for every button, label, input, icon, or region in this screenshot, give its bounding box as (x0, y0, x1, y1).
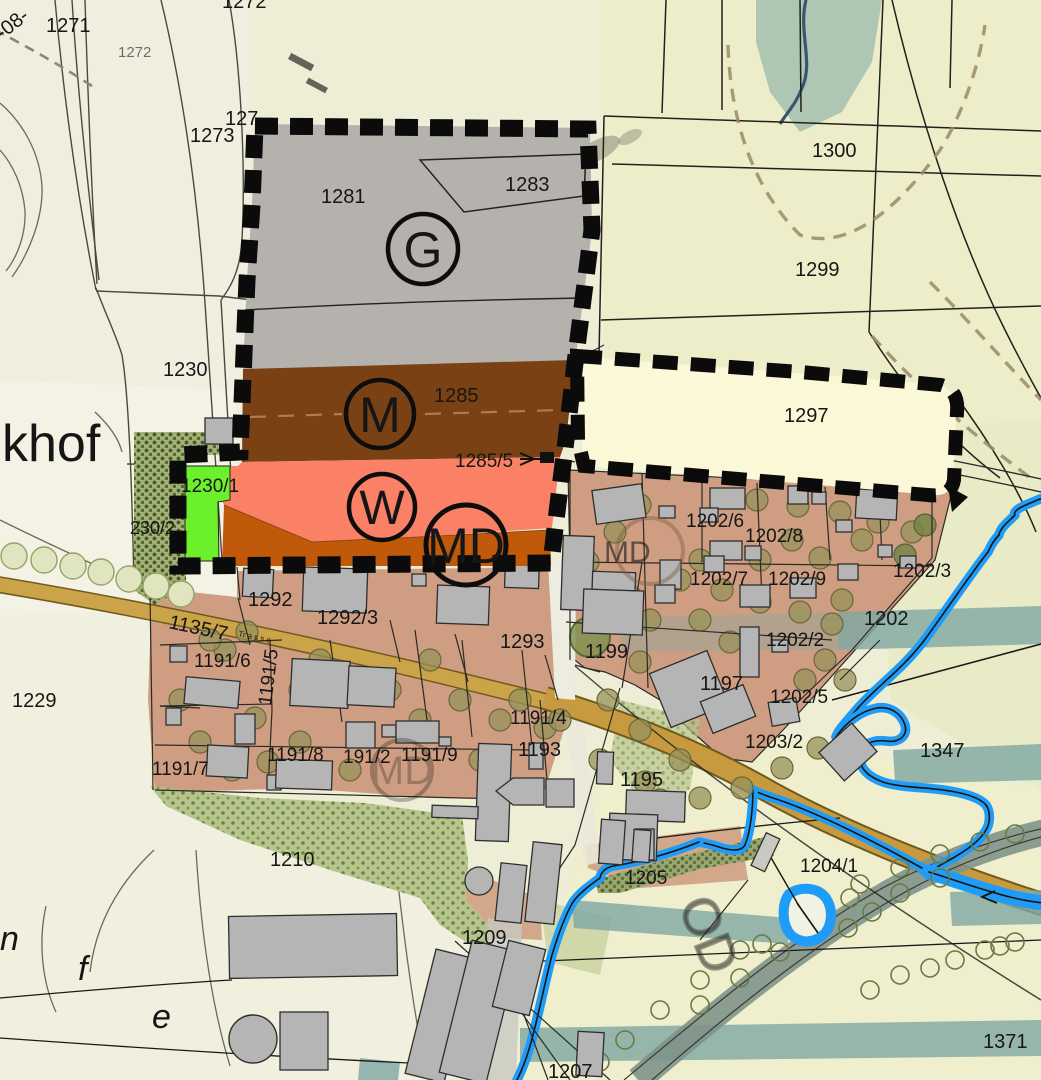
svg-text:1199: 1199 (585, 641, 628, 663)
svg-text:1283: 1283 (505, 174, 550, 196)
svg-text:1191/8: 1191/8 (267, 745, 324, 766)
svg-text:1285: 1285 (434, 385, 479, 407)
svg-text:1202/7: 1202/7 (690, 569, 748, 590)
svg-text:230/2: 230/2 (130, 518, 175, 538)
svg-text:1230: 1230 (163, 359, 208, 381)
svg-text:1193: 1193 (518, 739, 561, 761)
svg-text:1191/6: 1191/6 (194, 651, 251, 672)
svg-text:1195: 1195 (620, 769, 663, 791)
svg-text:1272: 1272 (222, 0, 267, 13)
svg-text:n: n (0, 920, 19, 958)
svg-text:1273: 1273 (190, 125, 235, 147)
svg-text:1299: 1299 (795, 259, 840, 281)
svg-text:1229: 1229 (12, 690, 57, 712)
svg-text:W: W (359, 482, 405, 535)
svg-text:1209: 1209 (462, 927, 507, 949)
svg-text:1191/4: 1191/4 (510, 708, 567, 729)
svg-text:1191/9: 1191/9 (401, 745, 458, 766)
svg-text:1292: 1292 (248, 589, 293, 611)
svg-text:1281: 1281 (321, 186, 366, 208)
svg-text:1205: 1205 (625, 868, 667, 889)
svg-text:1272: 1272 (118, 44, 151, 61)
svg-text:1210: 1210 (270, 849, 315, 871)
svg-text:1202/2: 1202/2 (766, 630, 824, 651)
svg-text:1300: 1300 (812, 140, 857, 162)
svg-text:191/2: 191/2 (343, 747, 391, 768)
svg-text:1202/8: 1202/8 (745, 526, 803, 547)
svg-text:1202/9: 1202/9 (768, 569, 826, 590)
svg-text:1271: 1271 (46, 15, 91, 37)
svg-text:1297: 1297 (784, 405, 829, 427)
svg-text:1285/5: 1285/5 (455, 451, 513, 472)
svg-text:e: e (152, 998, 171, 1036)
svg-text:1203/2: 1203/2 (745, 732, 803, 753)
svg-text:G: G (404, 222, 443, 278)
svg-text:1202/6: 1202/6 (686, 511, 744, 532)
svg-text:khof: khof (2, 415, 101, 473)
svg-text:1293: 1293 (500, 631, 545, 653)
svg-text:1191/7: 1191/7 (152, 759, 209, 780)
svg-text:1292/3: 1292/3 (317, 607, 378, 629)
svg-text:MD: MD (604, 536, 651, 569)
svg-text:1197: 1197 (700, 673, 743, 695)
svg-text:1371: 1371 (983, 1031, 1028, 1053)
svg-text:1202: 1202 (864, 608, 909, 630)
svg-text:1204/1: 1204/1 (800, 856, 858, 877)
svg-text:M: M (359, 387, 401, 443)
svg-text:MD: MD (427, 518, 505, 574)
svg-text:1202/5: 1202/5 (770, 687, 828, 708)
svg-text:1347: 1347 (920, 740, 965, 762)
svg-text:1230/1: 1230/1 (181, 476, 239, 497)
svg-text:1207: 1207 (548, 1061, 593, 1080)
svg-text:1202/3: 1202/3 (893, 561, 951, 582)
